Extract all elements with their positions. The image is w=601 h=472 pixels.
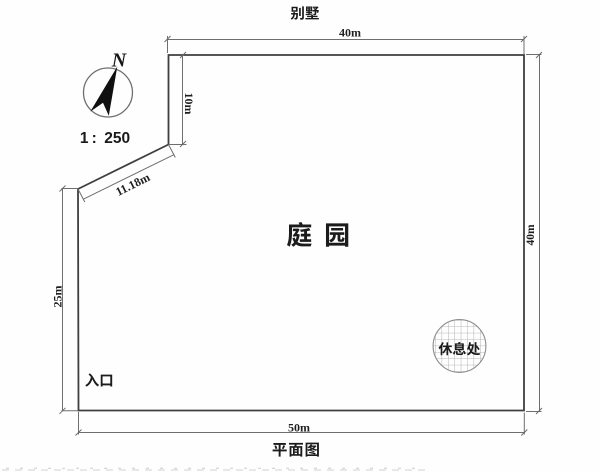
svg-text:50m: 50m: [288, 421, 310, 435]
svg-text:25m: 25m: [50, 286, 64, 308]
svg-text:10m: 10m: [182, 93, 196, 115]
svg-text:N: N: [111, 50, 128, 72]
svg-text:40m: 40m: [339, 26, 361, 40]
svg-text:40m: 40m: [525, 224, 537, 246]
svg-text:1 : 250: 1 : 250: [80, 130, 130, 147]
